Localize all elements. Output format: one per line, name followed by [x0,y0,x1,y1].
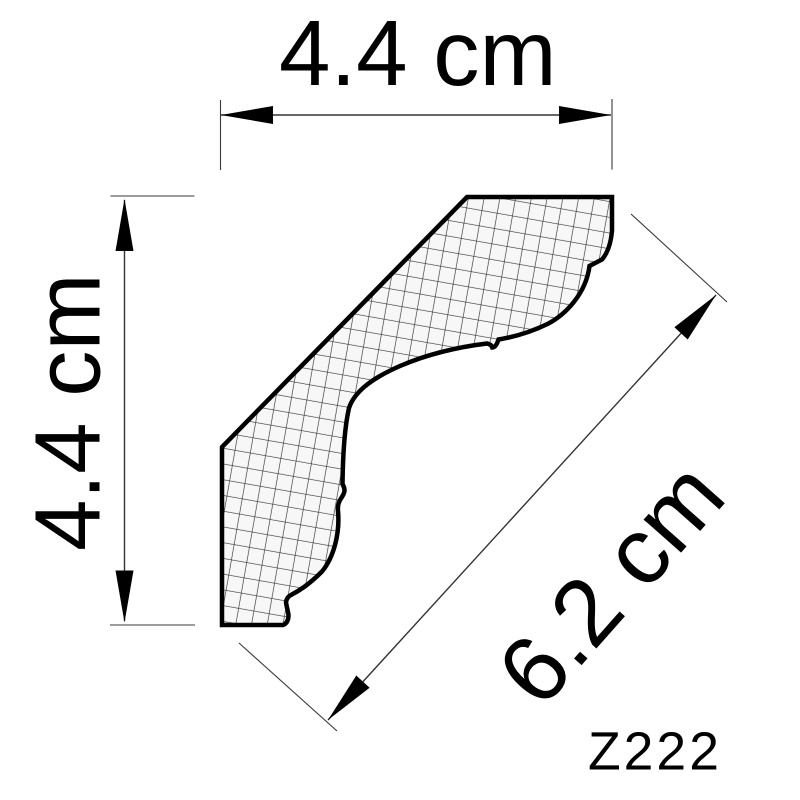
svg-text:Z222: Z222 [588,723,722,782]
svg-text:4.4 cm: 4.4 cm [16,273,120,551]
svg-text:4.4 cm: 4.4 cm [279,1,557,105]
